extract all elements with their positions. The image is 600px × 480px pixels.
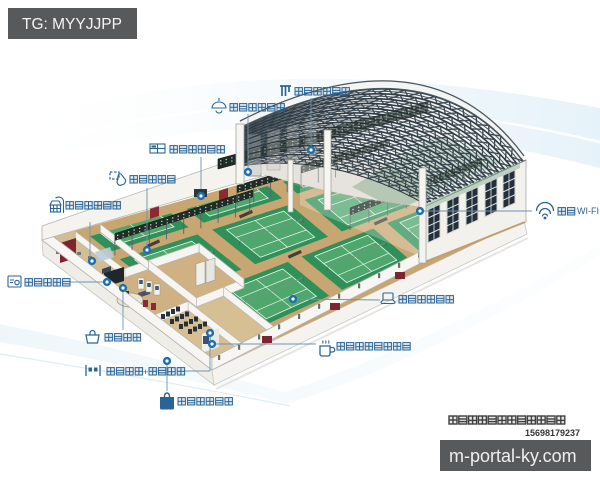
svg-text:+: +: [143, 367, 148, 377]
svg-text:15698179237: 15698179237: [525, 428, 580, 438]
svg-text:TG: MYYJJPP: TG: MYYJJPP: [22, 16, 122, 33]
svg-text:m-portal-ky.com: m-portal-ky.com: [449, 446, 577, 466]
svg-text:WI-FI: WI-FI: [577, 206, 599, 216]
